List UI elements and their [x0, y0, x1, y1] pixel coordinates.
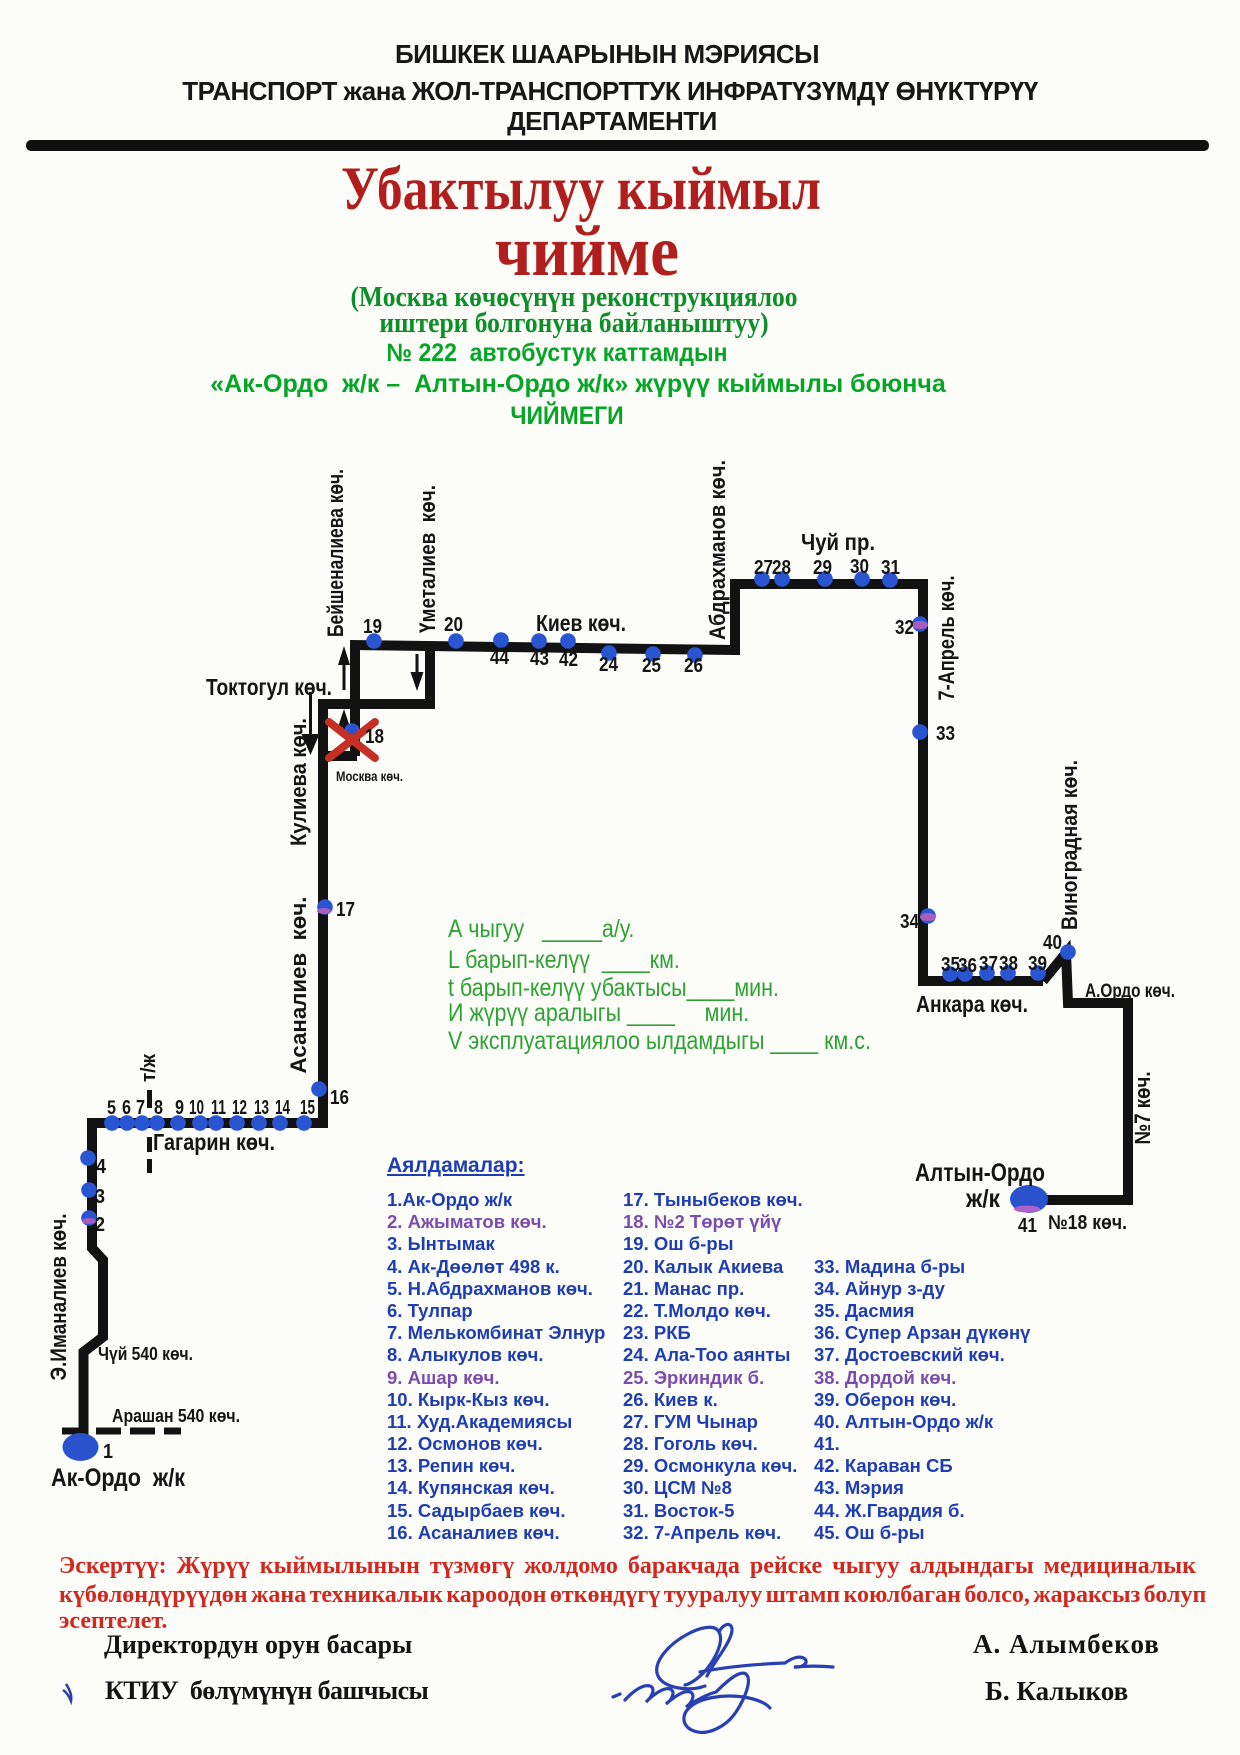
svg-text:Абдрахманов көч.: Абдрахманов көч.: [705, 460, 730, 640]
svg-text:10: 10: [189, 1097, 204, 1119]
svg-text:25: 25: [642, 655, 661, 677]
svg-text:13: 13: [254, 1097, 269, 1119]
svg-text:7-Апрель көч.: 7-Апрель көч.: [934, 576, 959, 701]
svg-text:5: 5: [107, 1098, 116, 1119]
svg-text:11: 11: [211, 1097, 226, 1119]
svg-text:43: 43: [530, 648, 549, 670]
svg-text:Үметалиев көч.: Үметалиев көч.: [415, 485, 440, 633]
svg-text:Арашан 540 көч.: Арашан 540 көч.: [112, 1406, 240, 1426]
svg-text:41: 41: [1018, 1215, 1037, 1237]
svg-text:Чүй 540 көч.: Чүй 540 көч.: [98, 1344, 193, 1364]
svg-text:3: 3: [95, 1186, 105, 1208]
svg-text:28: 28: [772, 557, 791, 579]
svg-text:39: 39: [1028, 953, 1047, 975]
svg-text:42: 42: [559, 649, 578, 671]
svg-text:37: 37: [979, 953, 998, 975]
svg-text:Гагарин көч.: Гагарин көч.: [153, 1129, 275, 1155]
svg-text:А чыгуу _____а/у.: А чыгуу _____а/у.: [448, 914, 634, 942]
svg-text:Э.Иманалиев көч.: Э.Иманалиев көч.: [46, 1214, 71, 1381]
svg-text:8: 8: [154, 1097, 163, 1119]
svg-text:32: 32: [895, 617, 914, 639]
svg-text:2: 2: [95, 1214, 105, 1236]
svg-text:Токтогул көч.: Токтогул көч.: [206, 674, 332, 700]
svg-text:Москва көч.: Москва көч.: [336, 768, 403, 784]
svg-text:44: 44: [490, 647, 510, 669]
svg-text:33: 33: [936, 723, 955, 745]
svg-text:26: 26: [684, 655, 703, 677]
svg-text:ж/к: ж/к: [965, 1185, 1000, 1213]
svg-text:20: 20: [444, 614, 463, 636]
svg-text:1: 1: [103, 1441, 113, 1463]
svg-text:31: 31: [881, 557, 900, 579]
svg-text:14: 14: [275, 1097, 291, 1119]
svg-text:Бейшеналиева көч.: Бейшеналиева көч.: [323, 469, 348, 637]
svg-text:16: 16: [330, 1087, 349, 1109]
svg-text:И жүрүү аралыгы ____ мин.: И жүрүү аралыгы ____ мин.: [448, 998, 749, 1026]
svg-text:36: 36: [958, 955, 977, 977]
svg-text:А.Ордо көч.: А.Ордо көч.: [1085, 981, 1175, 1002]
svg-text:Чуй пр.: Чуй пр.: [801, 529, 875, 555]
svg-text:9: 9: [175, 1097, 184, 1119]
svg-text:40: 40: [1043, 932, 1062, 954]
svg-text:6: 6: [122, 1097, 131, 1119]
svg-text:29: 29: [813, 557, 832, 579]
svg-text:24: 24: [599, 654, 619, 676]
svg-text:34: 34: [900, 911, 920, 933]
svg-text:№7 көч.: №7 көч.: [1130, 1072, 1155, 1145]
svg-text:Асаналиев көч.: Асаналиев көч.: [286, 897, 311, 1074]
svg-text:Кулиева көч.: Кулиева көч.: [286, 718, 311, 846]
svg-text:27: 27: [754, 557, 773, 579]
svg-text:L барып-келүү ____км.: L барып-келүү ____км.: [448, 945, 680, 973]
svg-text:30: 30: [850, 556, 869, 578]
svg-text:Анкара көч.: Анкара көч.: [916, 991, 1028, 1017]
svg-text:7: 7: [136, 1097, 145, 1119]
svg-text:18: 18: [365, 726, 384, 748]
svg-text:Ак-Ордо ж/к: Ак-Ордо ж/к: [51, 1464, 185, 1492]
svg-text:Алтын-Ордо: Алтын-Ордо: [915, 1159, 1045, 1187]
svg-text:т/ж: т/ж: [138, 1053, 160, 1082]
svg-text:№18 көч.: №18 көч.: [1048, 1212, 1127, 1234]
svg-text:15: 15: [300, 1097, 315, 1119]
svg-text:4: 4: [96, 1156, 107, 1178]
svg-text:38: 38: [999, 953, 1018, 975]
svg-text:t барып-келүү убактысы____мин.: t барып-келүү убактысы____мин.: [448, 973, 779, 1001]
svg-text:Виноградная көч.: Виноградная көч.: [1057, 760, 1082, 930]
svg-text:12: 12: [232, 1097, 247, 1119]
svg-text:Киев көч.: Киев көч.: [536, 610, 626, 636]
svg-text:19: 19: [363, 616, 382, 638]
svg-text:17: 17: [336, 899, 355, 921]
svg-text:V эксплуатациялоо ылдамдыгы __: V эксплуатациялоо ылдамдыгы ____ км.с.: [448, 1026, 871, 1054]
